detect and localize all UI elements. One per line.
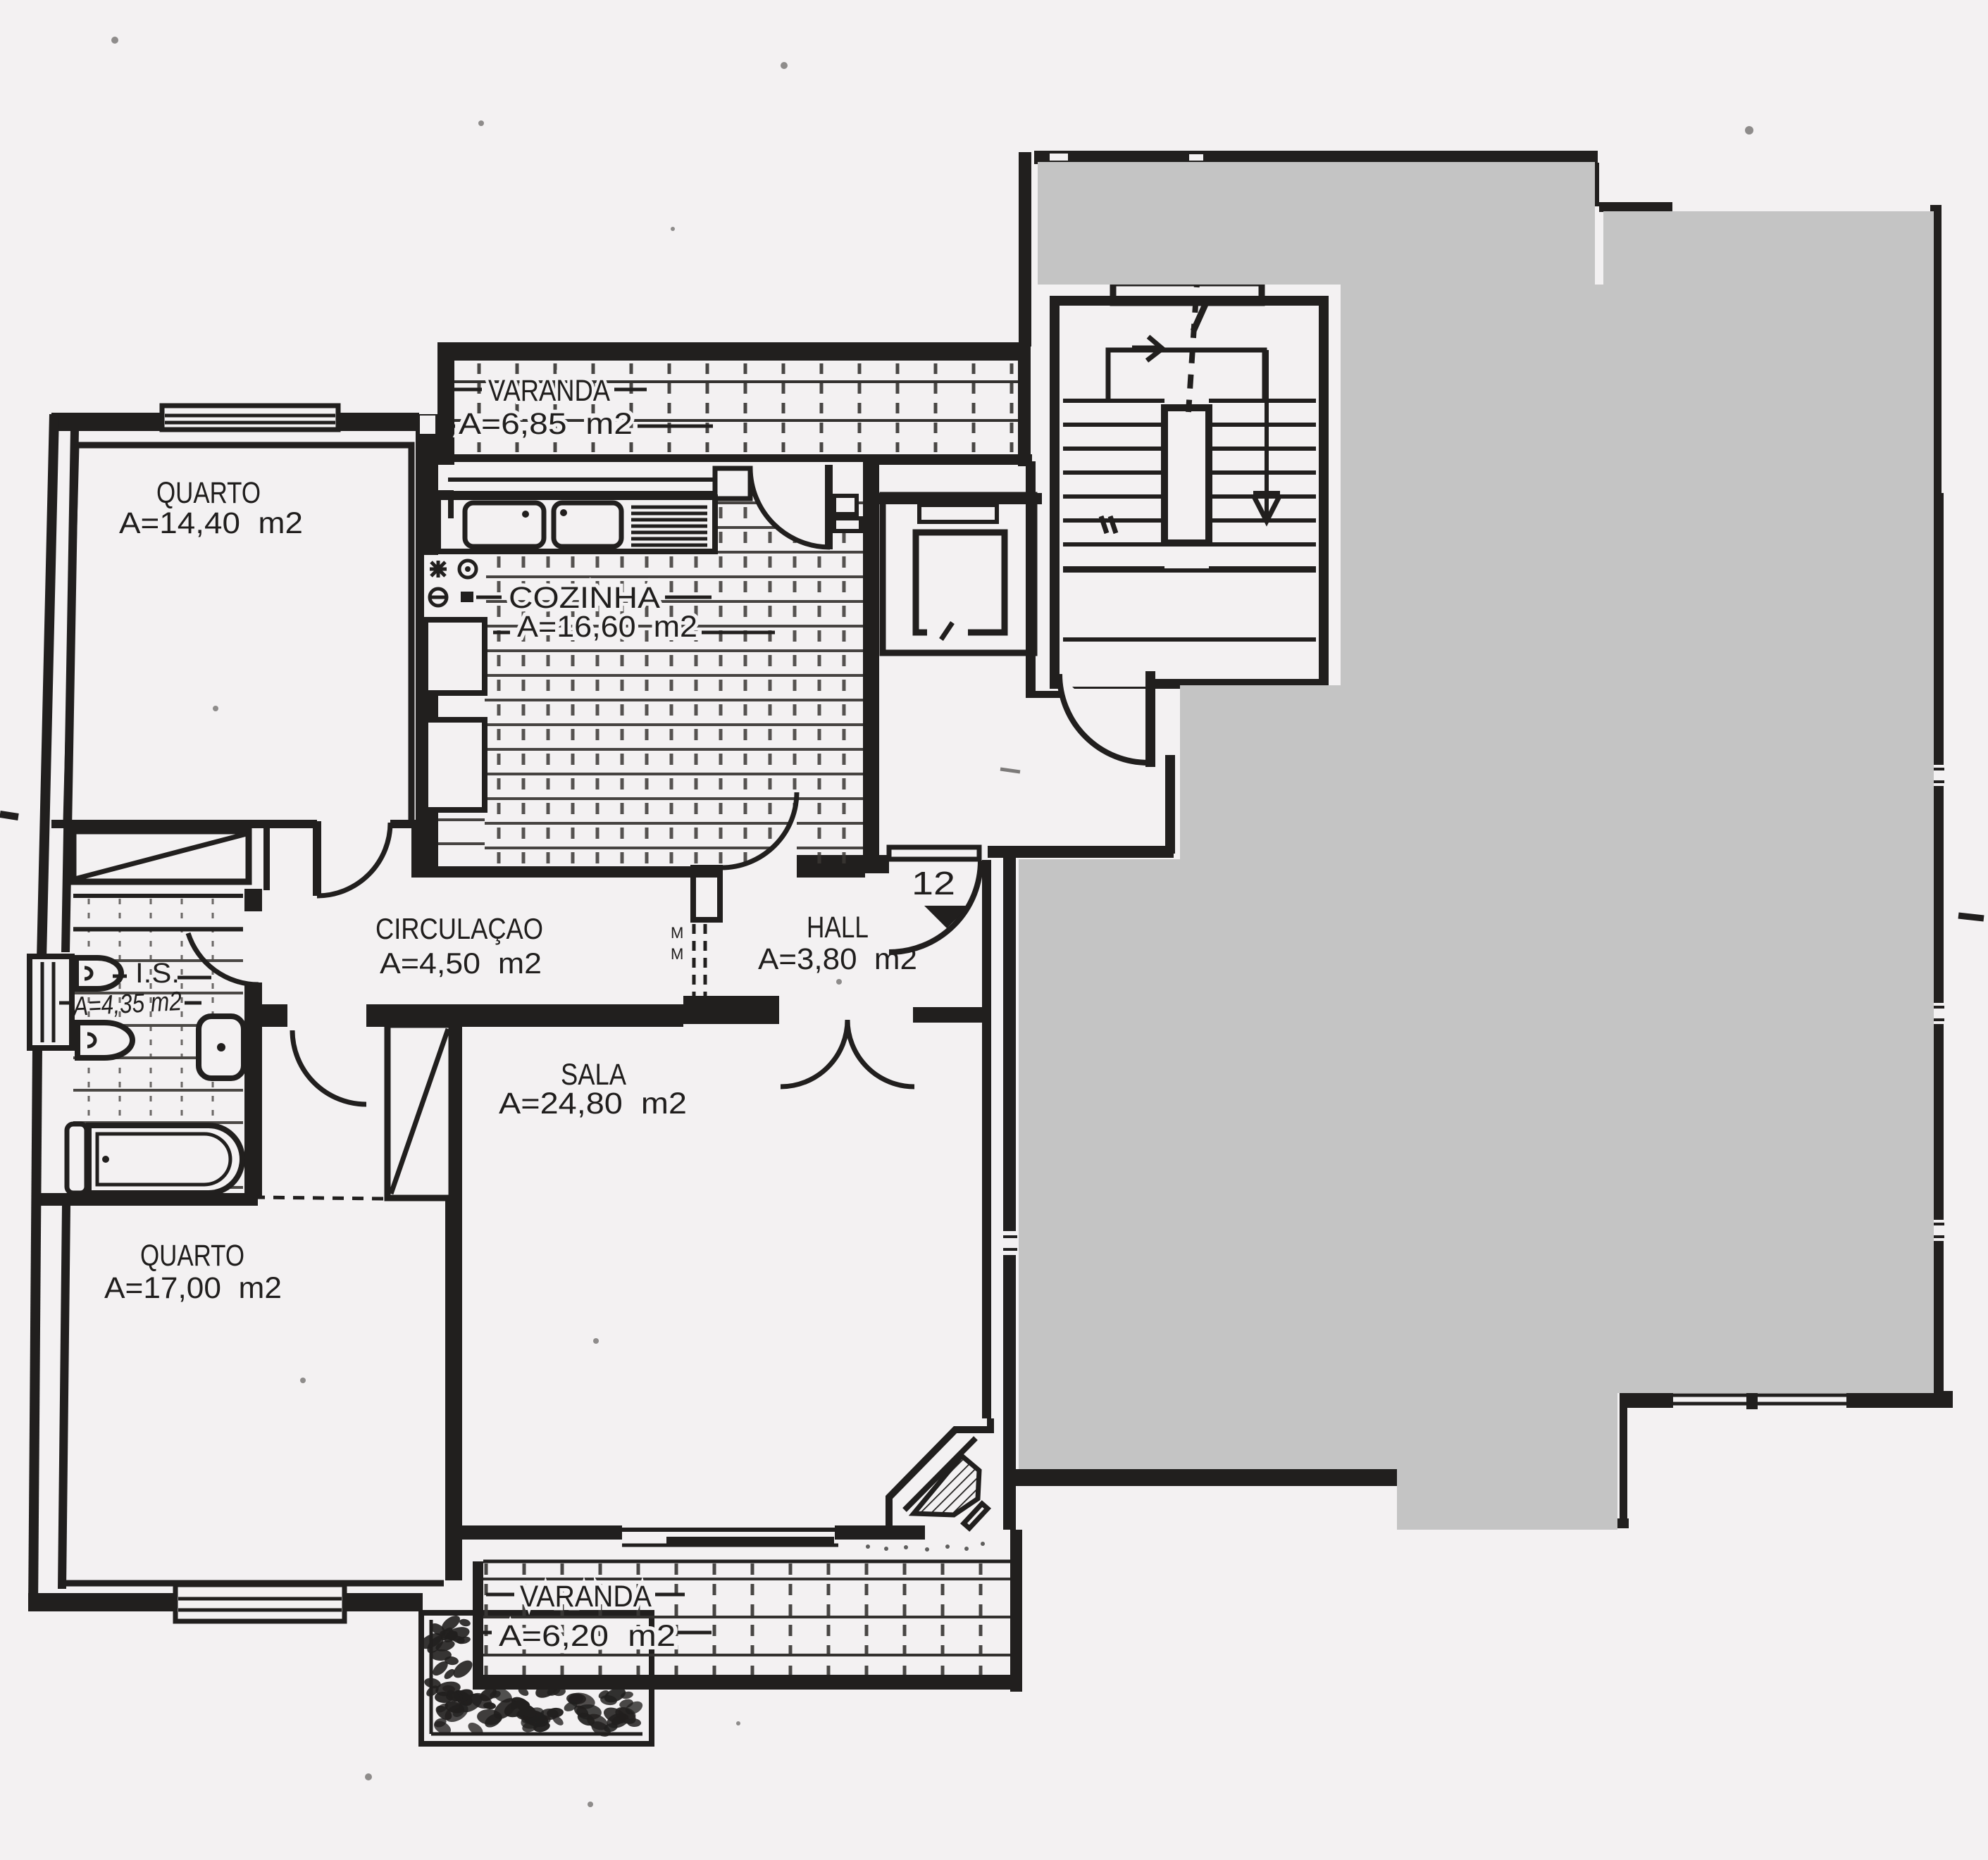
svg-text:VARANDA: VARANDA <box>488 374 610 408</box>
svg-text:QUARTO: QUARTO <box>156 476 261 510</box>
svg-text:A=4,35 m2: A=4,35 m2 <box>71 987 182 1022</box>
svg-text:M: M <box>671 945 683 963</box>
svg-text:A=4,50 m2: A=4,50 m2 <box>380 947 542 980</box>
svg-text:CIRCULAÇAO: CIRCULAÇAO <box>375 912 543 945</box>
svg-text:12: 12 <box>912 865 955 901</box>
svg-text:QUARTO: QUARTO <box>140 1239 244 1273</box>
svg-text:HALL: HALL <box>807 911 869 944</box>
svg-text:I.S.: I.S. <box>135 958 180 989</box>
svg-text:VARANDA: VARANDA <box>520 1580 652 1614</box>
svg-text:A=24,80 m2: A=24,80 m2 <box>499 1087 687 1121</box>
svg-text:A=17,00 m2: A=17,00 m2 <box>104 1271 282 1305</box>
svg-text:A=6,85 m2: A=6,85 m2 <box>459 407 633 441</box>
svg-text:A=6,20 m2: A=6,20 m2 <box>499 1619 676 1653</box>
svg-text:A=16,60 m2: A=16,60 m2 <box>517 610 697 644</box>
svg-text:A=14,40 m2: A=14,40 m2 <box>119 506 303 540</box>
svg-text:A=3,80 m2: A=3,80 m2 <box>758 942 917 976</box>
svg-text:M: M <box>671 924 683 942</box>
